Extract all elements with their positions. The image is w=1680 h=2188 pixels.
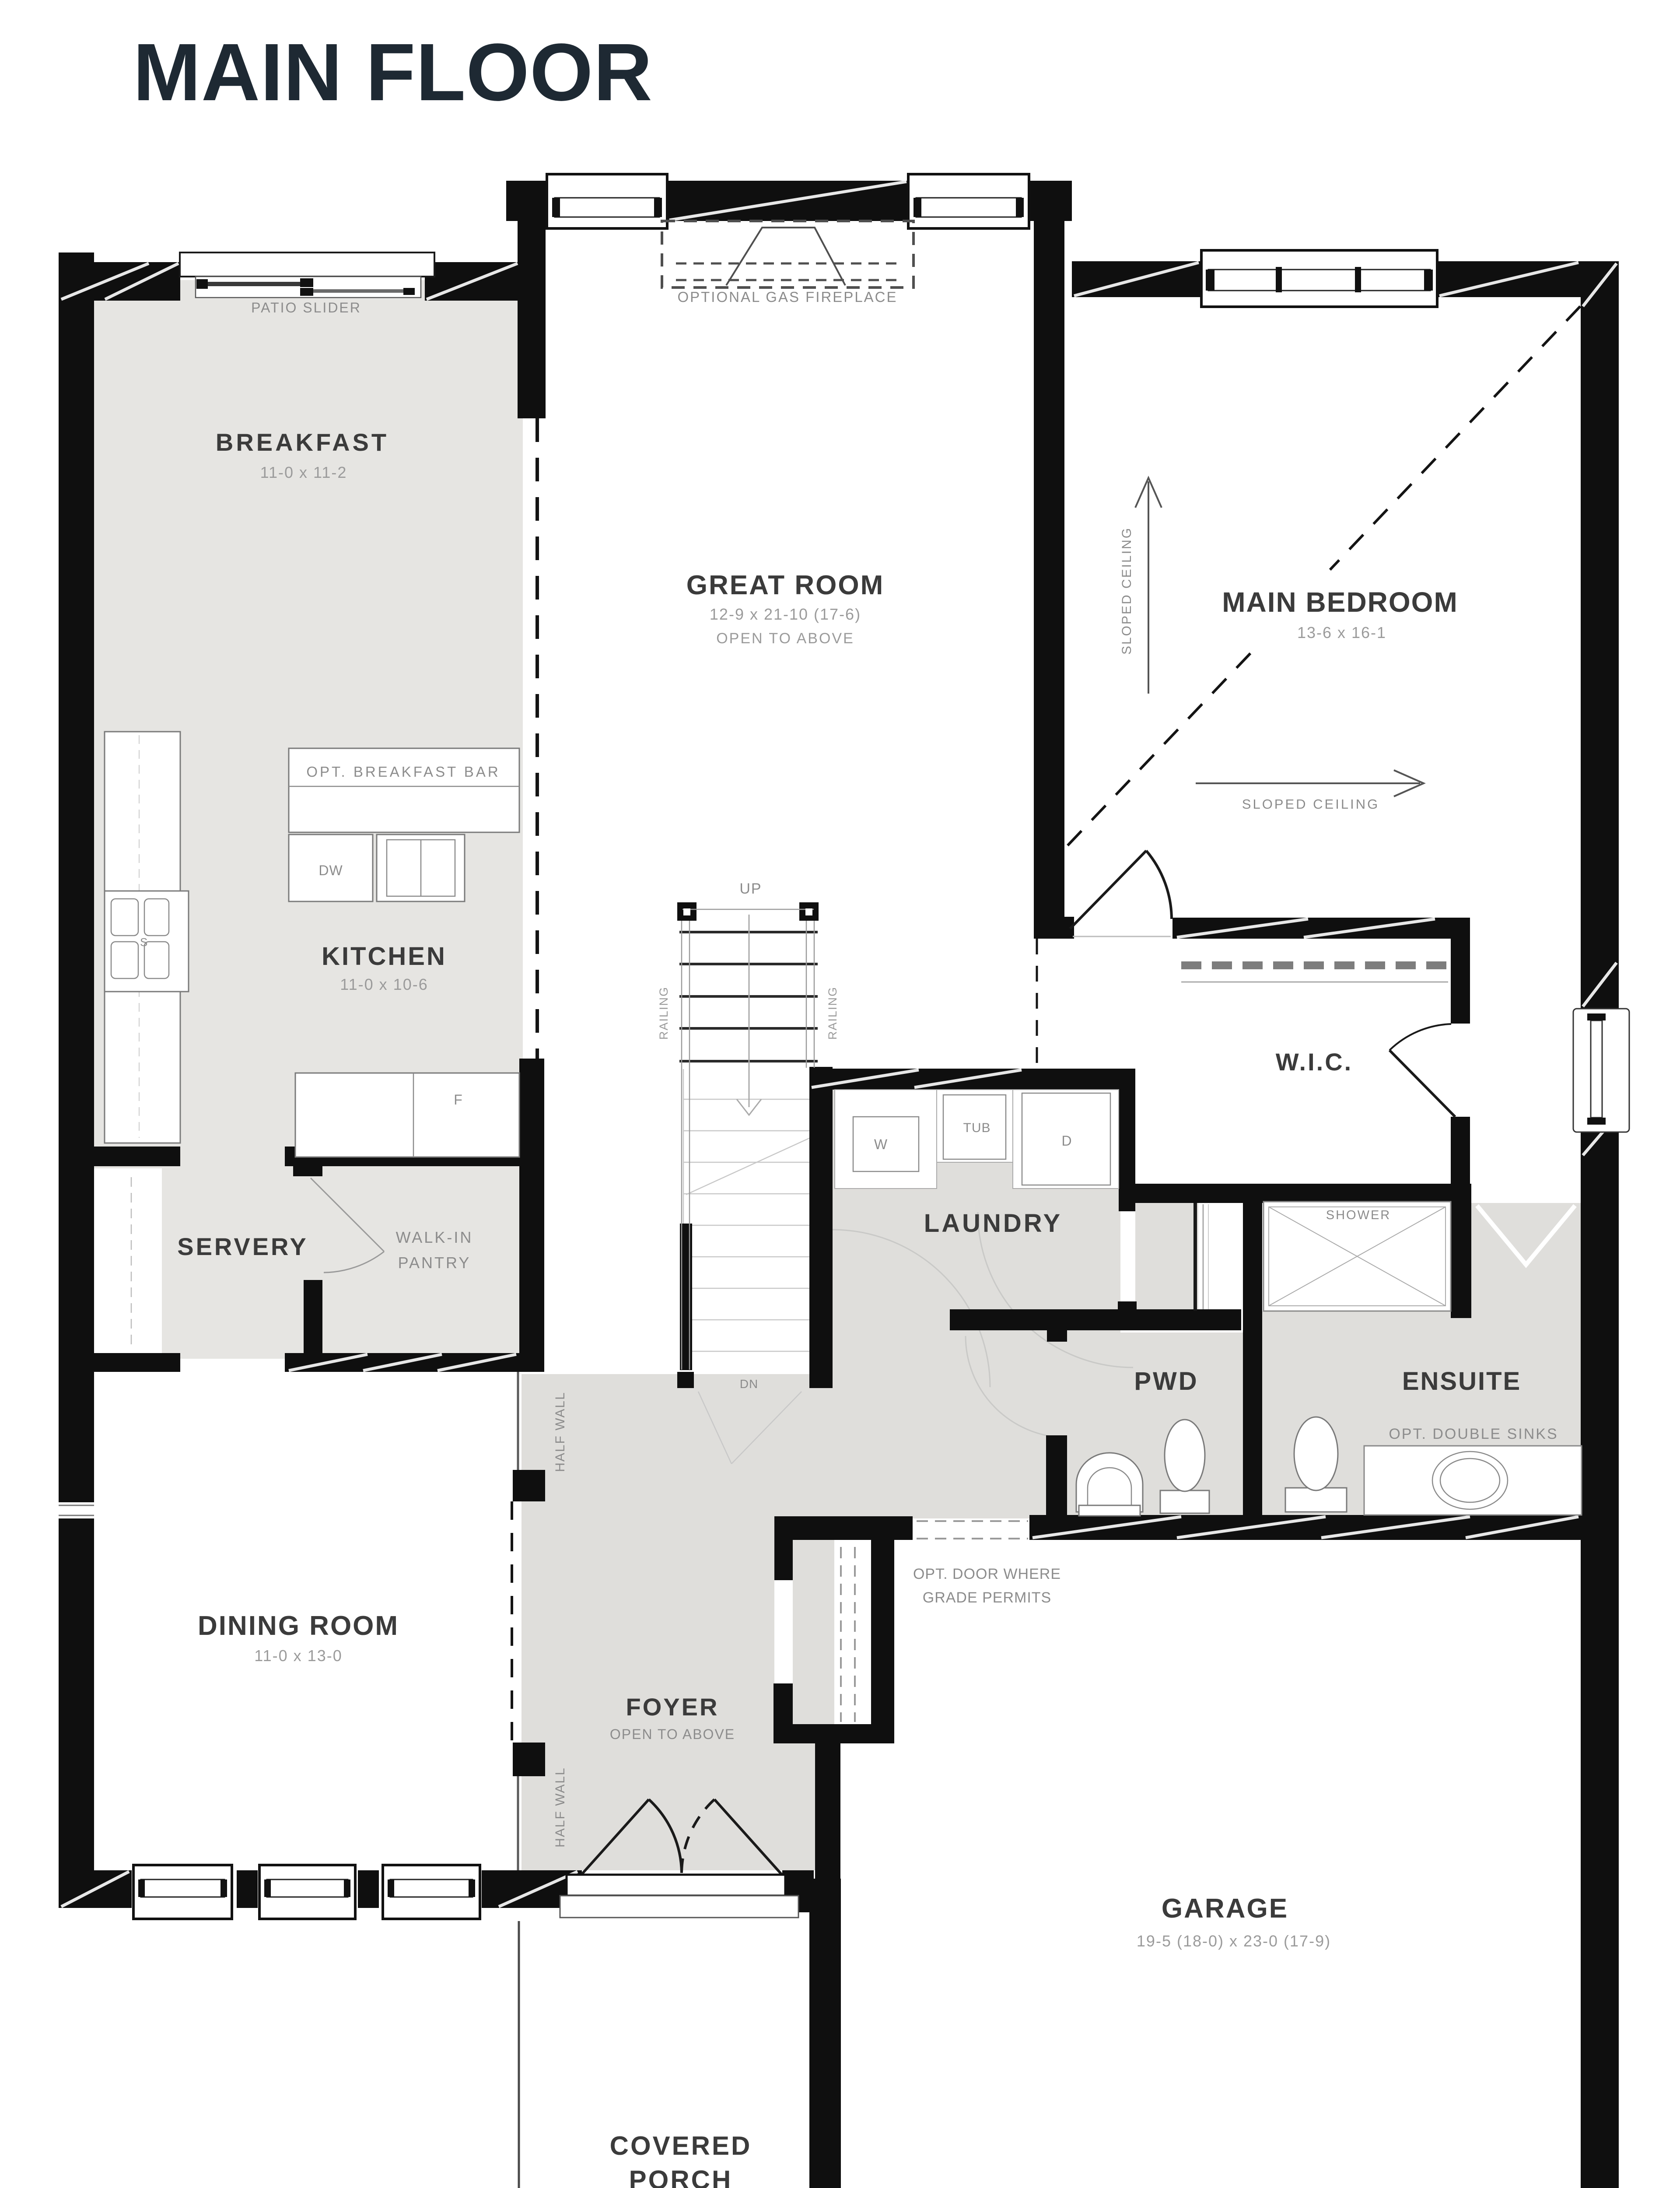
- svg-text:DW: DW: [318, 863, 343, 878]
- svg-text:11-0 x 10-6: 11-0 x 10-6: [340, 975, 428, 993]
- svg-text:D: D: [1061, 1133, 1071, 1149]
- svg-text:DN: DN: [740, 1377, 758, 1391]
- svg-text:11-0 x 11-2: 11-0 x 11-2: [260, 463, 347, 481]
- svg-text:OPEN TO ABOVE: OPEN TO ABOVE: [716, 630, 854, 647]
- svg-text:GARAGE: GARAGE: [1162, 1893, 1288, 1924]
- svg-text:SERVERY: SERVERY: [177, 1233, 308, 1260]
- svg-text:OPT. BREAKFAST BAR: OPT. BREAKFAST BAR: [306, 764, 500, 780]
- svg-text:OPT. DOOR WHERE: OPT. DOOR WHERE: [913, 1566, 1061, 1582]
- svg-text:PORCH: PORCH: [629, 2165, 733, 2188]
- svg-text:LAUNDRY: LAUNDRY: [924, 1209, 1062, 1238]
- svg-text:WALK-IN: WALK-IN: [396, 1228, 473, 1246]
- svg-text:UP: UP: [739, 880, 762, 897]
- svg-text:PANTRY: PANTRY: [398, 1254, 471, 1272]
- svg-text:HALF WALL: HALF WALL: [553, 1767, 567, 1848]
- svg-text:SHOWER: SHOWER: [1326, 1208, 1391, 1222]
- svg-text:DINING ROOM: DINING ROOM: [198, 1611, 399, 1641]
- svg-text:FOYER: FOYER: [626, 1693, 719, 1721]
- svg-text:KITCHEN: KITCHEN: [322, 942, 447, 971]
- svg-text:12-9 x 21-10 (17-6): 12-9 x 21-10 (17-6): [710, 605, 861, 623]
- svg-text:HALF WALL: HALF WALL: [553, 1392, 567, 1472]
- svg-text:RAILING: RAILING: [657, 986, 670, 1040]
- svg-text:ENSUITE: ENSUITE: [1402, 1367, 1521, 1396]
- svg-text:MAIN FLOOR: MAIN FLOOR: [133, 27, 653, 118]
- svg-text:S: S: [140, 936, 147, 949]
- svg-text:11-0 x 13-0: 11-0 x 13-0: [254, 1647, 342, 1665]
- svg-text:OPTIONAL GAS FIREPLACE: OPTIONAL GAS FIREPLACE: [677, 289, 897, 305]
- svg-text:13-6 x 16-1: 13-6 x 16-1: [1297, 624, 1386, 642]
- svg-text:F: F: [454, 1092, 462, 1108]
- svg-text:BREAKFAST: BREAKFAST: [216, 428, 389, 456]
- svg-text:GRADE PERMITS: GRADE PERMITS: [923, 1589, 1051, 1606]
- svg-text:W.I.C.: W.I.C.: [1276, 1048, 1353, 1076]
- svg-text:PATIO SLIDER: PATIO SLIDER: [251, 300, 361, 316]
- svg-text:SLOPED CEILING: SLOPED CEILING: [1242, 796, 1379, 812]
- svg-text:PWD: PWD: [1134, 1367, 1198, 1396]
- svg-text:19-5 (18-0) x 23-0 (17-9): 19-5 (18-0) x 23-0 (17-9): [1137, 1932, 1331, 1950]
- svg-text:OPT. DOUBLE SINKS: OPT. DOUBLE SINKS: [1389, 1426, 1558, 1442]
- svg-text:MAIN BEDROOM: MAIN BEDROOM: [1222, 586, 1458, 618]
- svg-text:W: W: [874, 1136, 888, 1152]
- svg-text:COVERED: COVERED: [610, 2131, 752, 2160]
- svg-text:TUB: TUB: [963, 1121, 991, 1135]
- svg-text:RAILING: RAILING: [826, 986, 839, 1040]
- svg-text:OPEN TO ABOVE: OPEN TO ABOVE: [610, 1726, 735, 1742]
- svg-text:SLOPED CEILING: SLOPED CEILING: [1120, 527, 1134, 655]
- svg-text:GREAT ROOM: GREAT ROOM: [686, 570, 885, 600]
